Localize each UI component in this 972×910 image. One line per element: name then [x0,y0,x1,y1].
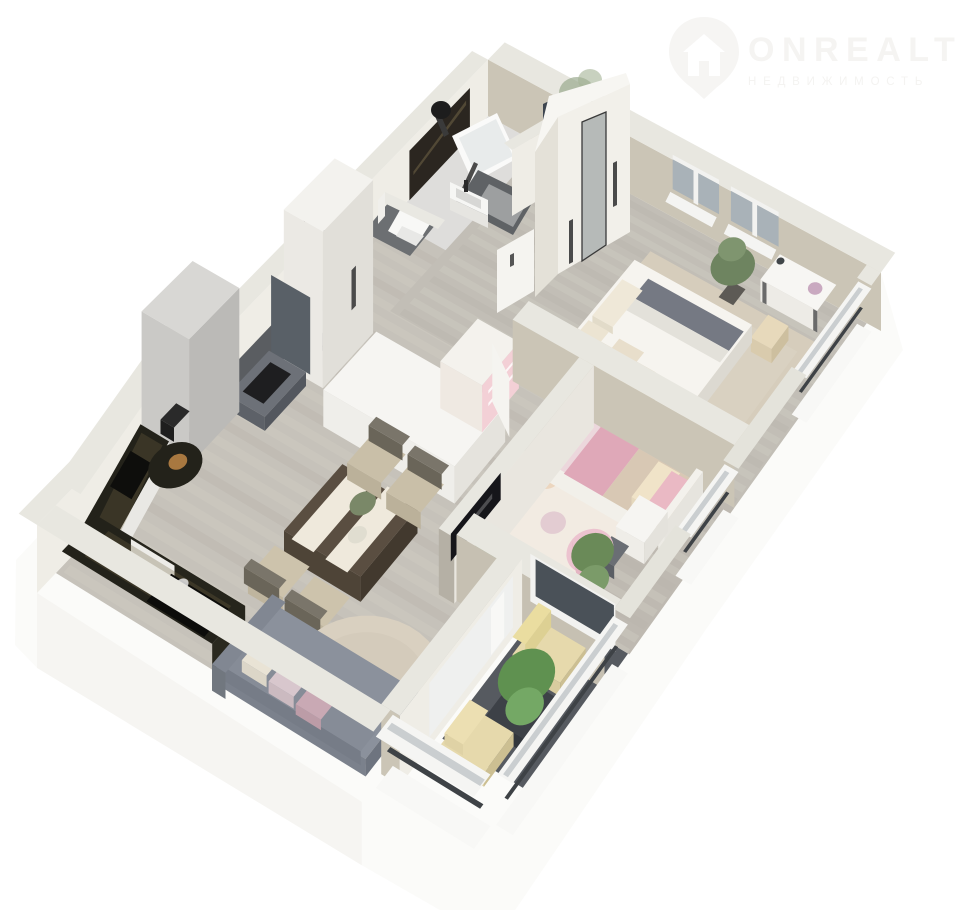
svg-text:ONREALT: ONREALT [748,31,962,69]
svg-text:НЕДВИЖИМОСТЬ: НЕДВИЖИМОСТЬ [748,76,929,88]
